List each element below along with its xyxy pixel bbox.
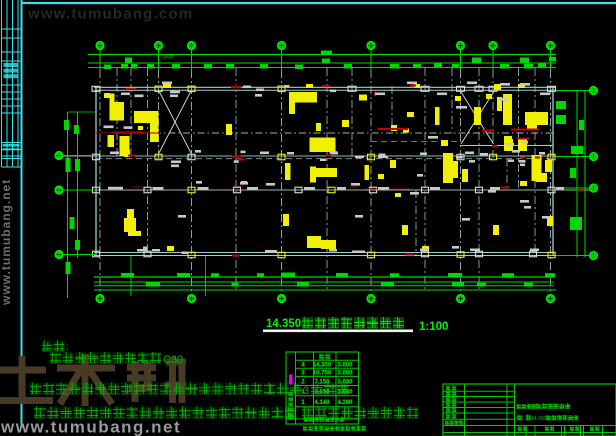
- svg-text:3.600: 3.600: [337, 390, 353, 396]
- svg-text:4.140: 4.140: [314, 400, 330, 406]
- svg-text:www.tumubang.net: www.tumubang.net: [0, 418, 181, 436]
- svg-text:3.600: 3.600: [337, 363, 353, 369]
- svg-text:14.350: 14.350: [531, 416, 547, 422]
- svg-text:10.750: 10.750: [313, 371, 332, 377]
- svg-text:www.tumubang.net: www.tumubang.net: [0, 179, 13, 306]
- svg-text:www.tumubang.com: www.tumubang.com: [27, 6, 193, 23]
- svg-text:3.600: 3.600: [337, 371, 353, 377]
- svg-text:14.350: 14.350: [313, 363, 332, 369]
- svg-text:3.600: 3.600: [337, 380, 353, 386]
- svg-text::: :: [66, 342, 69, 353]
- svg-text:1:100: 1:100: [419, 321, 448, 333]
- svg-text:4.200: 4.200: [337, 400, 353, 406]
- svg-text:3.550: 3.550: [314, 390, 330, 396]
- svg-text:14.350: 14.350: [266, 318, 301, 330]
- svg-text:7.150: 7.150: [314, 380, 330, 386]
- svg-text:C30: C30: [163, 354, 183, 366]
- svg-text:3000: 3000: [162, 55, 173, 61]
